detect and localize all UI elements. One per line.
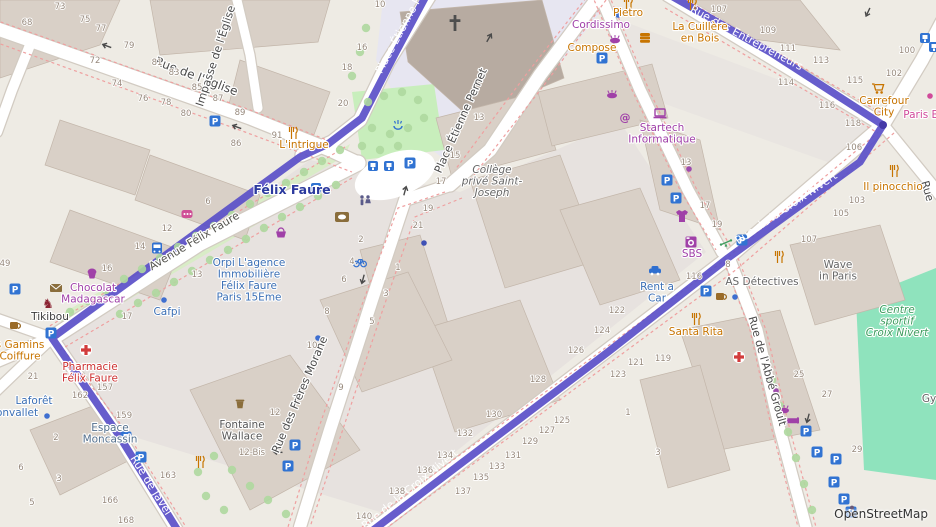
parking-shape: P [48,330,55,340]
house-number: 21 [28,372,39,382]
felix-faure-station-label: Félix Faure [253,182,330,197]
osm-map[interactable]: PPPPPPPPPPPPPPPPPPP♞@Rue de l'ÉgliseImpa… [0,0,936,527]
cafpi-label: Cafpi [153,306,180,318]
rent-a-car-label: Rent a [640,281,674,293]
house-number: 16 [357,43,368,53]
house-number: 4 [349,257,354,267]
house-number: 74 [112,79,123,89]
orpi-agence-label: Immobilière [218,269,280,281]
tree-icon [170,278,178,286]
tree-icon [808,506,816,514]
parking-icon: P [662,175,673,187]
route-vertex-dot [879,121,887,129]
tree-icon [404,124,412,132]
toilets-shape [360,195,363,198]
house-number: 81 [152,58,163,68]
parking-shape: P [292,442,299,452]
parking-shape: P [407,160,414,170]
tree-icon [394,142,402,150]
dot-shape [927,93,933,99]
parking-shape: P [285,463,292,473]
parking-icon: P [46,328,57,340]
house-number: 17 [436,177,447,187]
startech-informatique-label: Startech [640,122,685,134]
envelope-icon [50,284,62,292]
washer-shape [687,237,690,239]
parking-icon: P [812,447,823,459]
playground-shape [720,243,722,245]
burger-icon [640,33,650,43]
tree-icon [242,235,250,243]
rent-a-car-label: Car [648,293,667,305]
station-shape [371,163,376,167]
house-number: 106 [846,143,862,153]
espace-moncassin-label: Espace [91,422,128,434]
house-number: 109 [760,26,776,36]
house-number: 19 [423,204,434,214]
house-number: 18 [342,63,353,73]
poi-icon [44,413,50,419]
parking-icon: P [831,454,842,466]
tree-icon [792,454,800,462]
parking-icon: P [405,158,416,170]
parking-icon: P [829,477,840,489]
house-number: 119 [655,354,671,364]
tree-icon [398,88,406,96]
parking-icon: P [701,286,712,298]
poi-icon [421,240,427,246]
fontaine-wallace-label: Fontaine [219,419,264,431]
l-intrigue-label: L'intrigue [279,139,328,151]
gy-label: Gy [922,393,936,405]
bus-shape [154,245,161,249]
parking-icon: P [671,193,682,205]
tree-icon [228,466,236,474]
onvallet-label: onvallet [0,407,38,419]
tree-icon [296,203,304,211]
house-number: 5 [369,317,374,327]
parking-shape: P [803,428,810,438]
orpi-agence-label: Orpi L'agence [213,257,286,269]
tree-icon [376,146,384,154]
parking-icon: P [597,53,608,65]
centre-sportif-croix-nivert-label: sportif [880,316,916,328]
house-number: 138 [389,487,405,497]
tree-icon [138,265,146,273]
burger-shape [640,33,650,36]
tree-icon [332,181,340,189]
house-number: 16 [102,264,113,274]
house-number: 13 [192,270,203,280]
parking-shape: P [664,177,671,187]
redcross-icon [80,344,92,356]
house-number: 80 [181,109,192,119]
house-number: 6 [341,275,346,285]
la-cuillere-en-bois-label: en Bois [681,33,719,45]
house-number: 105 [833,209,849,219]
house-number: 12-Bis [239,448,266,458]
cup-shape [10,322,18,329]
parking-shape: P [599,55,606,65]
photo-icon [335,212,349,222]
station-shape [924,40,926,43]
house-number: 83 [169,68,180,78]
tree-icon [134,299,142,307]
house-number: 162 [72,391,88,401]
tikibou-label: Tikibou [30,311,69,323]
house-number: 102 [886,69,902,79]
car-shape [651,273,654,276]
startech-informatique-label: Informatique [628,134,695,146]
il-pinocchio-label: Il pinocchio [863,181,923,193]
station-icon [920,33,930,43]
burger-shape [640,40,650,43]
dot-shape [44,413,50,419]
tree-icon [336,146,344,154]
dot-shape [161,297,167,303]
house-number: 123 [610,370,626,380]
house-number: 9 [338,383,343,393]
station-shape [923,35,928,39]
parking-shape: P [831,479,838,489]
college-prive-saint-joseph-label: privé Saint- [461,176,523,188]
map-canvas[interactable]: PPPPPPPPPPPPPPPPPPP♞@Rue de l'ÉgliseImpa… [0,0,936,527]
house-number: 128 [530,375,546,385]
tree-icon [246,200,254,208]
wave-in-paris-label: Wave [824,259,853,271]
washer-shape [690,241,693,244]
house-number: 87 [213,94,224,104]
poi-icon [161,297,167,303]
parking-icon: P [10,284,21,296]
espace-moncassin-label: Moncassin [83,434,138,446]
house-number: 12 [162,224,173,234]
house-number: 103 [849,196,865,206]
tree-icon [202,492,210,500]
house-number: 91 [272,131,283,141]
pietro-label: Pietro [613,7,643,19]
house-number: 77 [96,24,107,34]
house-number: 75 [80,15,91,25]
house-number: 114 [778,78,794,88]
parking-shape: P [814,449,821,459]
bin-shape [236,400,245,402]
house-number: 133 [489,462,505,472]
house-number: 3 [655,448,660,458]
station-icon [384,161,394,171]
parking-shape: P [703,288,710,298]
tree-icon [800,480,808,488]
tree-icon [364,98,372,106]
house-number: 111 [780,44,796,54]
compose-label: Compose [567,42,616,54]
house-number: 3 [383,289,388,299]
burger-shape [640,37,650,40]
house-number: 118 [845,119,861,129]
house-number: 13 [474,113,485,123]
house-number: 12 [270,408,281,418]
house-number: 130 [486,410,502,420]
attribution[interactable]: OpenStreetMap [834,507,928,521]
station-shape [388,168,390,171]
house-number: 116 [819,101,835,111]
college-prive-saint-joseph-label: Collège [472,164,511,176]
parking-shape: P [841,496,848,506]
washer-icon [686,237,697,248]
santa-rita-label: Santa Rita [669,326,723,338]
house-number: 17 [700,201,711,211]
house-number: 163 [160,471,176,481]
tree-icon [120,275,128,283]
house-number: 122 [609,306,625,316]
laforet-label: Laforêt [15,395,52,407]
car-shape [657,273,660,276]
station-icon [368,161,378,171]
house-number: 116 [686,272,702,282]
parking-icon: P [210,116,221,128]
parking-shape: P [833,456,840,466]
house-number: 124 [594,326,610,336]
station-shape [387,163,392,167]
house-number: 19 [712,220,723,230]
house-number: 89 [235,108,246,118]
house-number: 2 [53,433,58,443]
carrefour-city-label: Carrefour [859,95,909,107]
house-number: 8 [324,307,329,317]
poi-icon [732,294,738,300]
orpi-agence-label: Félix Faure [221,280,277,292]
house-number: 49 [0,259,10,269]
as-detectives-label: AS Détectives [725,276,798,288]
tree-icon [152,289,160,297]
fontaine-wallace-label: Wallace [222,431,263,443]
eye-icon [607,90,617,98]
parking-shape: P [673,195,680,205]
parking-shape: P [212,118,219,128]
house-number: 140 [356,512,372,522]
tree-icon [220,506,228,514]
house-number: 1 [395,263,400,273]
gamins-coiffure-label: s Gamins [0,339,44,351]
house-number: 68 [22,18,33,28]
house-number: 137 [455,487,471,497]
photo-shape [338,215,346,220]
tree-icon [300,168,308,176]
cordissimo-label: Cordissimo [572,19,630,31]
house-number: 131 [505,451,521,461]
sofa-shape [797,417,799,423]
tree-icon [386,130,394,138]
bus-icon [152,243,162,254]
tree-icon [414,96,422,104]
house-number: 6 [205,197,210,207]
toilets-shape [361,199,364,205]
station-icon [929,42,936,52]
house-number: 159 [116,411,132,421]
horse-shape: ♞ [42,297,54,312]
house-number: 21 [413,221,424,231]
toilets-shape [366,195,369,198]
tree-icon [362,24,370,32]
parking-icon: P [290,440,301,452]
house-number: 107 [711,5,727,15]
house-number: 85 [192,83,203,93]
house-number: 132 [457,429,473,439]
house-number: 107 [801,235,817,245]
house-number: 126 [568,346,584,356]
car-shape [652,266,659,270]
tree-icon [348,72,356,80]
bakery-shape [184,213,186,215]
tree-icon [282,510,290,518]
house-number: 86 [231,139,242,149]
house-number: 121 [628,358,644,368]
bus-shape [154,251,156,253]
parking-icon: P [839,494,850,506]
centre-sportif-croix-nivert-label: Croix Nivert [866,327,929,339]
horse-icon: ♞ [42,297,54,312]
house-number: 134 [437,451,453,461]
parking-icon: P [801,426,812,438]
wave-in-paris-label: in Paris [819,271,857,283]
bakery-icon [182,210,193,218]
cup-shape [716,293,724,300]
bin-shape [237,401,244,408]
parking-shape: P [12,286,19,296]
house-number: 17 [122,312,133,322]
house-number: 15 [450,151,461,161]
house-number: 1 [625,408,630,418]
house-number: 100 [899,46,915,56]
carrefour-city-label: City [874,107,895,119]
house-number: 8 [725,260,730,270]
house-number: 136 [417,466,433,476]
tree-icon [368,124,376,132]
tree-icon [784,428,792,436]
house-number: 115 [847,76,863,86]
orpi-agence-label: Paris 15Eme [216,292,281,304]
house-number: 168 [118,516,134,526]
parking-icon: P [283,461,294,473]
at-shape: @ [620,111,631,124]
tree-icon [260,224,268,232]
paris-b-label: Paris B [903,109,936,121]
playground-shape [730,239,732,241]
house-number: 3 [56,474,61,484]
house-number: 113 [813,56,829,66]
tree-icon [358,142,366,150]
house-number: 6 [18,463,23,473]
house-number: 72 [90,56,101,66]
bakery-shape [190,213,192,215]
tree-icon [380,92,388,100]
tree-icon [224,246,232,254]
house-number: 10 [375,0,386,10]
tree-icon [318,157,326,165]
tree-icon [210,452,218,460]
tree-icon [264,496,272,504]
dot-shape [421,240,427,246]
pharmacie-felix-faure-label: Pharmacie [62,361,117,373]
house-number: 2 [358,235,363,245]
house-number: 166 [102,496,118,506]
house-number: 10 [307,341,318,351]
house-number: 125 [554,416,570,426]
at-icon: @ [620,111,631,124]
house-number: 29 [852,445,863,455]
tree-icon [278,213,286,221]
basket-shape [276,232,286,238]
cart-shape [876,91,879,94]
tree-icon [420,114,428,122]
dot-shape [732,294,738,300]
house-number: 135 [473,473,489,483]
bus-shape [159,251,161,253]
la-cuillere-en-bois-label: La Cuillère [672,21,727,33]
house-number: 129 [522,437,538,447]
tree-icon [194,468,202,476]
tree-icon [246,482,254,490]
chocolat-madagascar-label: Chocolat [70,282,116,294]
house-number: 25 [794,370,805,380]
poi-icon [927,93,933,99]
house-number: 14 [135,242,146,252]
college-prive-saint-joseph-label: Joseph [473,187,510,199]
gamins-coiffure-label: Coiffure [0,351,41,363]
redcross-icon [733,351,745,363]
station-shape [372,168,374,171]
house-number: 127 [539,426,555,436]
house-number: 157 [97,383,113,393]
bakery-shape [187,213,189,215]
house-number: 76 [138,94,149,104]
house-number: 5 [29,498,34,508]
station-shape [932,44,936,48]
house-number: 13 [681,158,692,168]
house-number: 78 [161,98,172,108]
chocolat-madagascar-label: Madagascar [61,294,125,306]
house-number: 27 [822,390,833,400]
house-number: 20 [338,99,349,109]
station-shape [933,49,935,52]
centre-sportif-croix-nivert-label: Centre [879,304,914,316]
house-number: 79 [124,41,135,51]
cart-shape [880,91,883,94]
sbs-label: SBS [682,248,703,260]
eye-shape [607,93,617,99]
house-number: 73 [55,2,66,12]
